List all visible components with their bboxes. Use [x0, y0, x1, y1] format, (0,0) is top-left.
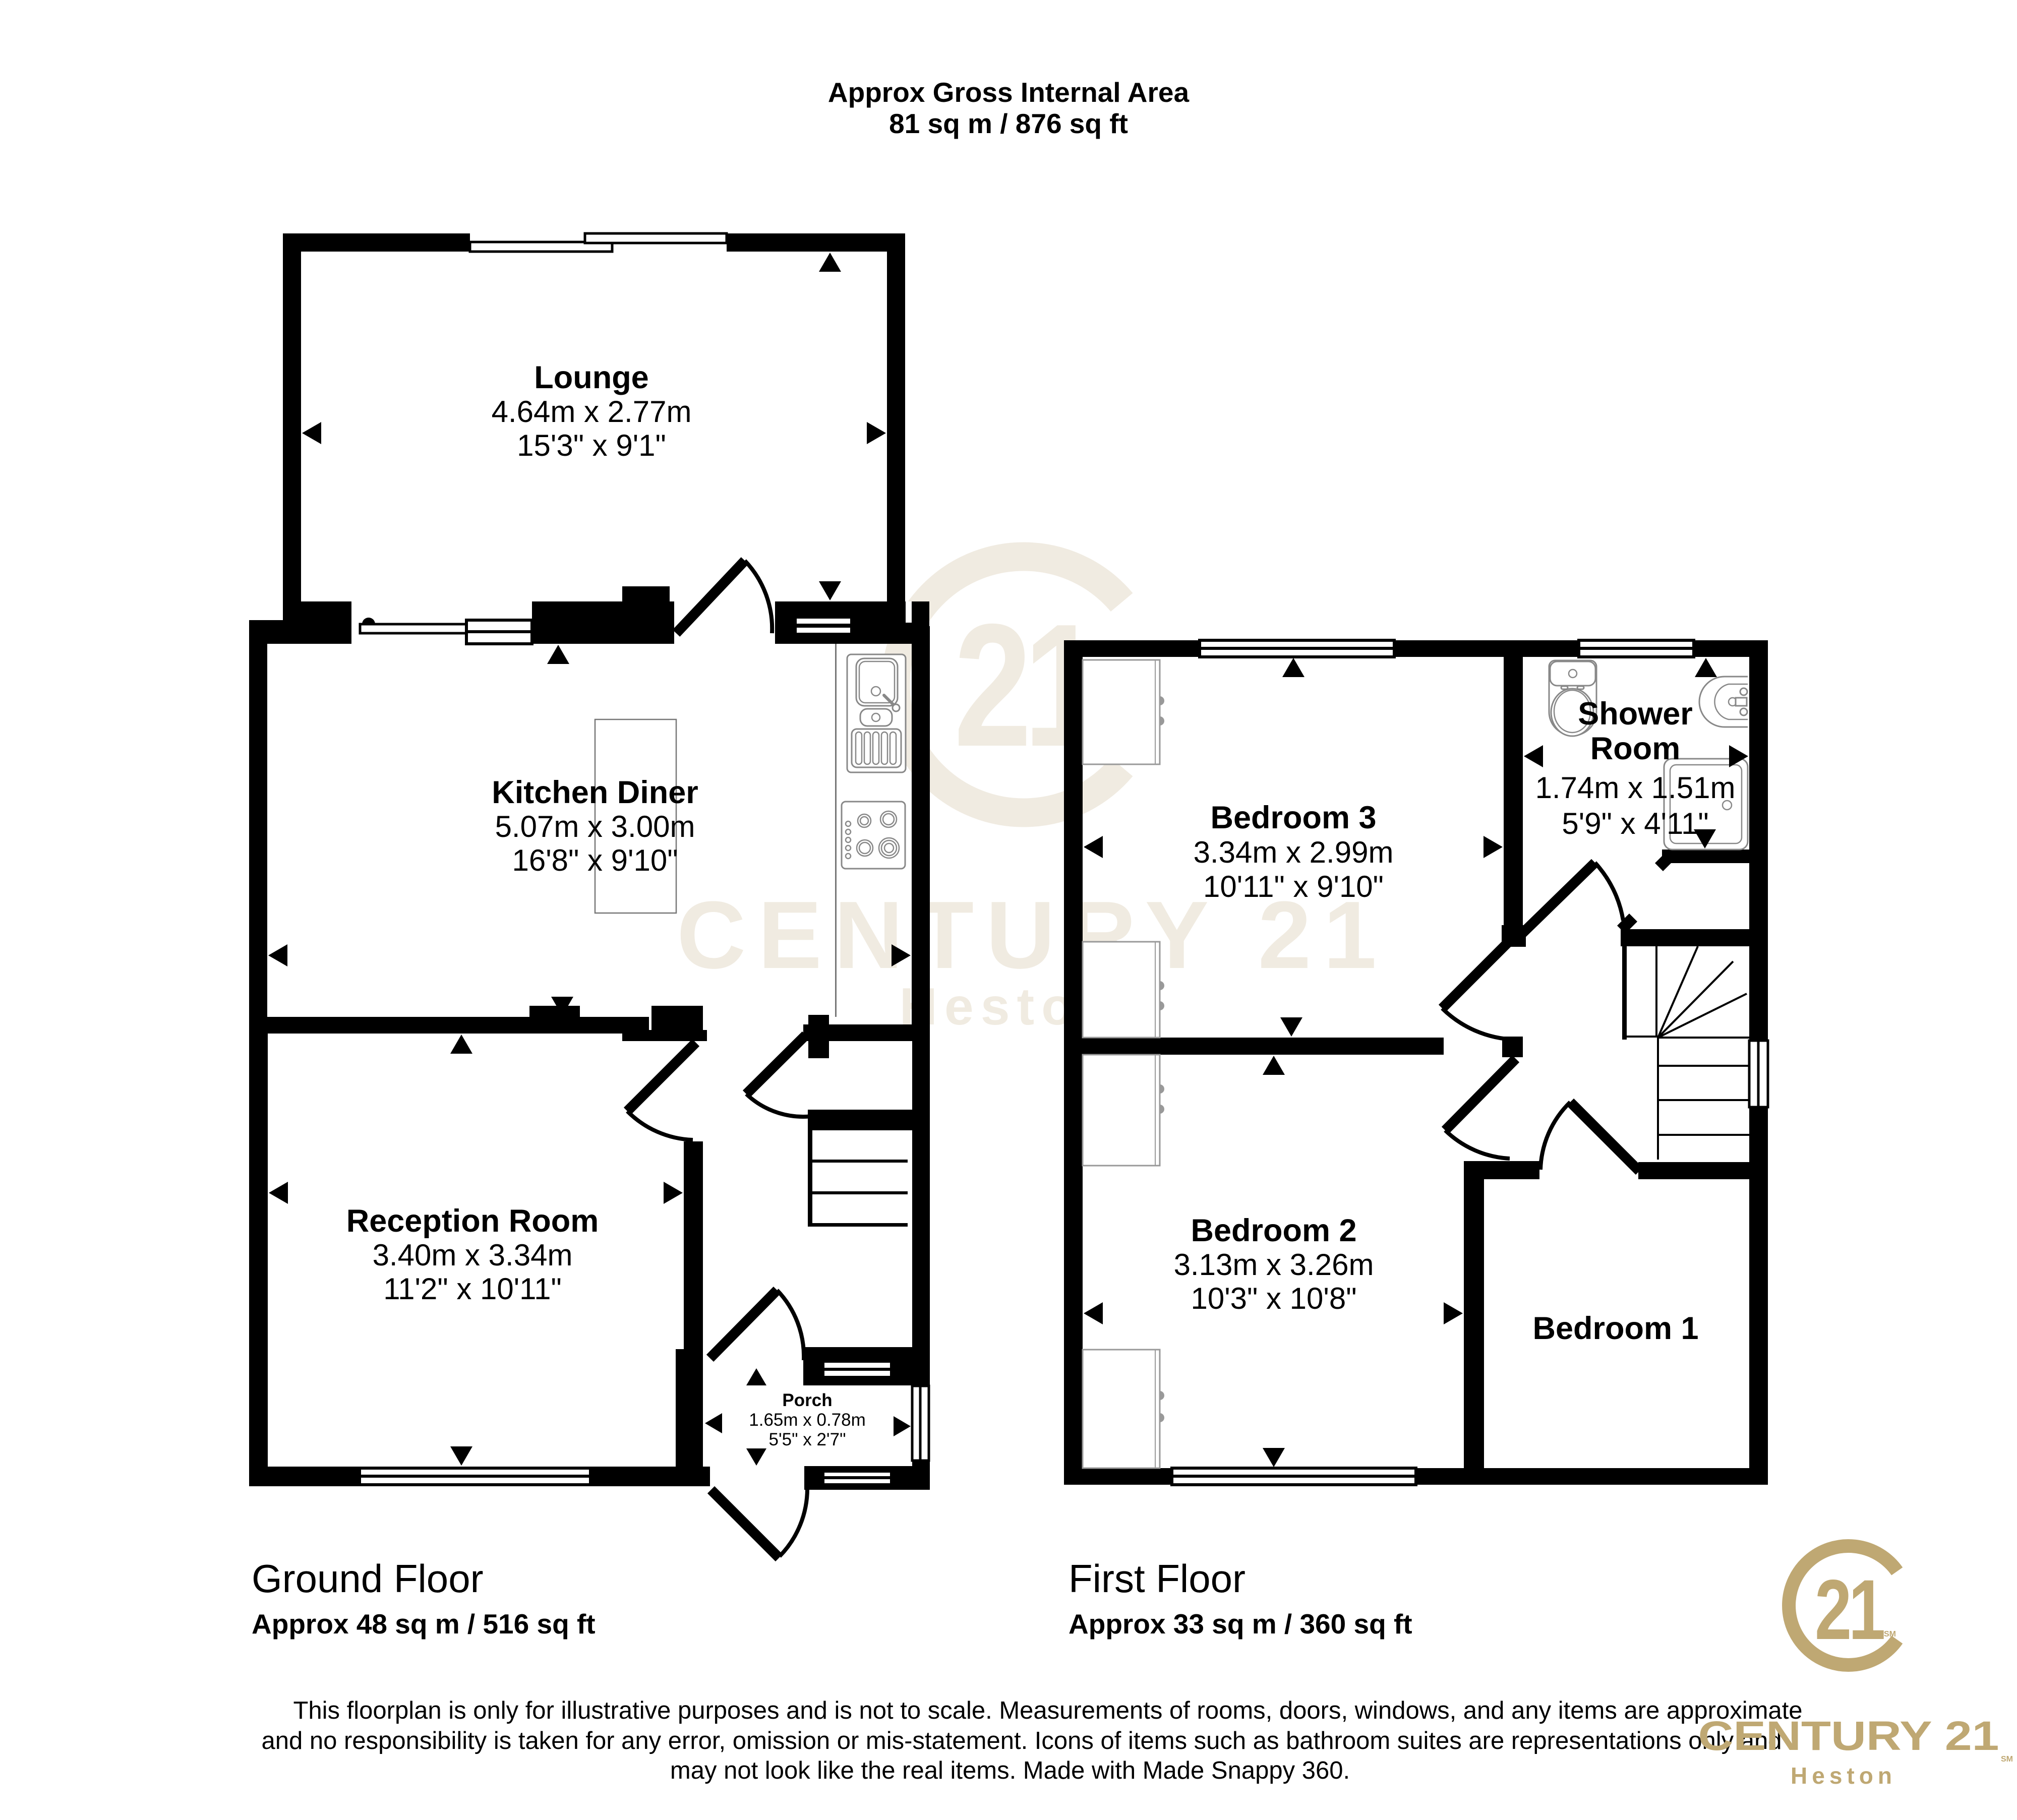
svg-text:Shower: Shower — [1578, 696, 1693, 732]
svg-text:First Floor: First Floor — [1069, 1556, 1245, 1601]
svg-text:CENTURY 21: CENTURY 21 — [1698, 1713, 1999, 1759]
svg-text:may not look like the real ite: may not look like the real items. Made w… — [670, 1757, 1350, 1784]
svg-text:Kitchen Diner: Kitchen Diner — [492, 775, 698, 810]
svg-text:and no responsibility is taken: and no responsibility is taken for any e… — [262, 1727, 1782, 1754]
svg-text:SM: SM — [1884, 1630, 1896, 1639]
svg-text:Lounge: Lounge — [534, 360, 648, 395]
svg-text:5'5" x 2'7": 5'5" x 2'7" — [768, 1430, 846, 1449]
svg-text:1.74m x 1.51m: 1.74m x 1.51m — [1535, 771, 1736, 805]
svg-text:3.34m x 2.99m: 3.34m x 2.99m — [1194, 835, 1394, 869]
svg-text:This floorplan is only for ill: This floorplan is only for illustrative … — [293, 1697, 1802, 1724]
svg-text:Bedroom 2: Bedroom 2 — [1191, 1213, 1356, 1248]
svg-text:1.65m x 0.78m: 1.65m x 0.78m — [749, 1410, 866, 1430]
svg-text:SM: SM — [2001, 1755, 2013, 1764]
svg-text:Bedroom 1: Bedroom 1 — [1532, 1311, 1698, 1346]
svg-text:21: 21 — [1815, 1562, 1884, 1657]
svg-text:Ground Floor: Ground Floor — [252, 1556, 484, 1601]
svg-text:Porch: Porch — [782, 1390, 832, 1410]
svg-text:10'3" x 10'8": 10'3" x 10'8" — [1191, 1282, 1356, 1315]
svg-text:5'9" x 4'11": 5'9" x 4'11" — [1562, 807, 1708, 840]
svg-text:Approx Gross Internal Area: Approx Gross Internal Area — [828, 77, 1190, 108]
svg-text:3.13m x 3.26m: 3.13m x 3.26m — [1174, 1248, 1374, 1282]
svg-text:11'2" x 10'11": 11'2" x 10'11" — [383, 1272, 562, 1306]
svg-text:81 sq m / 876 sq ft: 81 sq m / 876 sq ft — [889, 108, 1128, 139]
svg-text:Room: Room — [1590, 731, 1680, 766]
svg-text:Approx 33 sq m / 360 sq ft: Approx 33 sq m / 360 sq ft — [1069, 1608, 1412, 1640]
svg-text:3.40m x 3.34m: 3.40m x 3.34m — [373, 1238, 573, 1272]
svg-text:Approx 48 sq m / 516 sq ft: Approx 48 sq m / 516 sq ft — [252, 1608, 596, 1640]
svg-text:15'3" x 9'1": 15'3" x 9'1" — [517, 429, 666, 462]
svg-text:5.07m x 3.00m: 5.07m x 3.00m — [495, 810, 695, 843]
svg-text:Bedroom 3: Bedroom 3 — [1210, 800, 1376, 835]
svg-text:Reception Room: Reception Room — [346, 1203, 599, 1239]
svg-text:10'11" x 9'10": 10'11" x 9'10" — [1203, 870, 1384, 903]
svg-text:Heston: Heston — [1791, 1763, 1896, 1789]
svg-text:4.64m x 2.77m: 4.64m x 2.77m — [492, 395, 692, 429]
svg-text:16'8" x 9'10": 16'8" x 9'10" — [512, 843, 678, 877]
